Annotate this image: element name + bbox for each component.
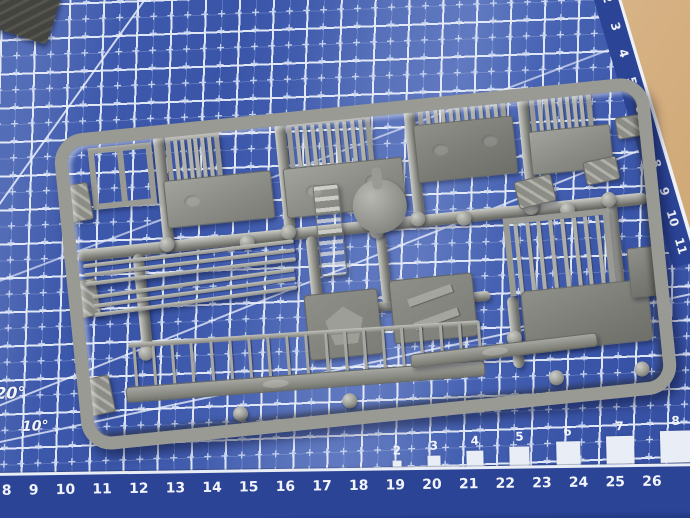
grid-plus-mark: + (522, 14, 532, 24)
grid-plus-mark: + (79, 65, 89, 75)
grid-plus-mark: + (231, 76, 241, 86)
grid-plus-mark: + (38, 288, 48, 298)
grid-plus-mark: + (113, 64, 123, 74)
grid-plus-mark: + (40, 220, 50, 230)
grid-plus-mark: + (420, 18, 430, 28)
ruler-number: 23 (532, 475, 552, 491)
grid-plus-mark: + (283, 40, 293, 50)
grid-plus-mark: + (39, 271, 49, 281)
grid-plus-mark: + (41, 203, 51, 213)
gauge-label: 4 (471, 434, 480, 448)
grid-plus-mark: + (248, 76, 258, 86)
grid-plus-mark: + (198, 44, 208, 54)
grid-plus-mark: + (232, 42, 242, 52)
grid-plus-mark: + (9, 136, 19, 146)
grid-plus-mark: + (34, 407, 44, 417)
grid-plus-mark: + (40, 237, 50, 247)
grid-plus-mark: + (182, 27, 192, 37)
grid-plus-mark: + (29, 50, 39, 60)
grid-plus-mark: + (333, 72, 343, 82)
grid-plus-mark: + (112, 81, 122, 91)
grid-plus-mark: + (147, 63, 157, 73)
grid-plus-mark: + (251, 0, 261, 1)
gauge-square (660, 430, 690, 463)
grid-plus-mark: + (488, 15, 498, 25)
grid-plus-mark: + (351, 38, 361, 48)
grid-plus-mark: + (334, 38, 344, 48)
grid-plus-mark: + (250, 8, 260, 18)
grid-plus-mark: + (180, 78, 190, 88)
grid-plus-mark: + (42, 169, 52, 179)
grid-plus-mark: + (237, 450, 247, 460)
grid-plus-mark: + (282, 74, 292, 84)
grid-plus-mark: + (183, 10, 193, 20)
ruler-number: 19 (385, 477, 405, 493)
grid-plus-mark: + (453, 51, 463, 61)
grid-plus-mark: + (300, 40, 310, 50)
grid-plus-mark: + (471, 0, 481, 9)
grid-plus-mark: + (317, 39, 327, 49)
grid-plus-mark: + (521, 48, 531, 58)
grid-plus-mark: + (351, 55, 361, 65)
grid-plus-mark: + (555, 47, 565, 57)
grid-plus-mark: + (36, 356, 46, 366)
grid-plus-mark: + (81, 0, 91, 7)
grid-plus-mark: + (95, 82, 105, 92)
grid-plus-mark: + (200, 9, 210, 19)
ruler-number: 16 (276, 479, 296, 495)
gauge-label: 8 (671, 414, 680, 428)
ruler-number: 18 (349, 478, 369, 494)
photo-sprue-on-cutting-mat: ++++++++++++++++++++++++++++++++++++++++… (0, 0, 690, 518)
grid-plus-mark: + (588, 63, 598, 73)
grid-plus-mark: + (20, 323, 30, 333)
gauge-square (606, 436, 635, 465)
grid-plus-mark: + (11, 68, 21, 78)
grid-plus-mark: + (505, 0, 515, 8)
grid-plus-mark: + (384, 70, 394, 80)
grid-plus-mark: + (0, 425, 10, 435)
grid-plus-mark: + (487, 32, 497, 42)
grid-plus-mark: + (683, 297, 690, 307)
grid-plus-mark: + (249, 59, 259, 69)
ruler-number: 20 (422, 477, 442, 493)
ruler-number: 4 (616, 48, 632, 60)
gauge-square (556, 441, 581, 466)
ruler-number: 17 (312, 478, 332, 494)
grid-plus-mark: + (162, 113, 172, 123)
angle-label-20: 20° (0, 383, 26, 403)
grid-plus-mark: + (45, 66, 55, 76)
grid-plus-mark: + (435, 68, 445, 78)
grid-plus-mark: + (130, 46, 140, 56)
grid-plus-mark: + (339, 429, 349, 439)
grid-plus-mark: + (147, 46, 157, 56)
grid-plus-mark: + (10, 102, 20, 112)
grid-plus-mark: + (573, 0, 583, 6)
grid-plus-mark: + (149, 11, 159, 21)
grid-plus-mark: + (98, 13, 108, 23)
ruler-number: 12 (129, 481, 149, 497)
grid-plus-mark: + (16, 459, 26, 469)
grid-plus-mark: + (271, 449, 281, 459)
grid-plus-mark: + (220, 451, 230, 461)
grid-plus-mark: + (488, 0, 498, 9)
grid-plus-mark: + (22, 254, 32, 264)
grid-plus-mark: + (233, 8, 243, 18)
ruler-number: 10 (663, 209, 681, 229)
grid-plus-mark: + (80, 31, 90, 41)
ruler-number: 3 (607, 20, 623, 32)
grid-plus-mark: + (249, 42, 259, 52)
grid-plus-mark: + (149, 0, 159, 5)
grid-plus-mark: + (539, 0, 549, 7)
grid-plus-mark: + (67, 440, 77, 450)
grid-plus-mark: + (94, 116, 104, 126)
grid-plus-mark: + (129, 80, 139, 90)
grid-plus-mark: + (164, 45, 174, 55)
grid-plus-mark: + (316, 90, 326, 100)
ruler-number: 26 (642, 474, 662, 490)
grid-plus-mark: + (418, 69, 428, 79)
grid-plus-mark: + (214, 94, 224, 104)
grid-plus-mark: + (317, 56, 327, 66)
grid-plus-mark: + (52, 389, 62, 399)
grid-plus-mark: + (254, 450, 264, 460)
ruler-number: 10 (56, 482, 76, 498)
grid-plus-mark: + (681, 331, 690, 341)
grid-plus-mark: + (166, 11, 176, 21)
grid-plus-mark: + (128, 114, 138, 124)
grid-plus-mark: + (284, 6, 294, 16)
gauge-label: 2 (392, 443, 401, 457)
grid-plus-mark: + (373, 428, 383, 438)
grid-plus-mark: + (41, 186, 51, 196)
grid-plus-mark: + (248, 93, 258, 103)
grid-plus-mark: + (216, 9, 226, 19)
grid-plus-mark: + (7, 204, 17, 214)
grid-plus-mark: + (183, 0, 193, 4)
grid-plus-mark: + (112, 98, 122, 108)
ruler-number: 25 (605, 474, 625, 490)
grid-plus-mark: + (61, 83, 71, 93)
gauge-column: 5 (509, 429, 530, 466)
grid-plus-mark: + (385, 53, 395, 63)
grid-plus-mark: + (42, 152, 52, 162)
grid-plus-mark: + (355, 446, 365, 456)
grid-plus-mark: + (288, 448, 298, 458)
grid-plus-mark: + (4, 306, 14, 316)
grid-plus-mark: + (418, 86, 428, 96)
gauge-label: 7 (615, 419, 624, 433)
grid-plus-mark: + (54, 321, 64, 331)
grid-plus-mark: + (217, 0, 227, 2)
gauge-column: 6 (555, 424, 580, 466)
grid-plus-mark: + (181, 44, 191, 54)
grid-plus-mark: + (318, 5, 328, 15)
grid-plus-mark: + (301, 6, 311, 16)
grid-plus-mark: + (271, 432, 281, 442)
grid-plus-mark: + (683, 280, 690, 290)
grid-plus-mark: + (50, 458, 60, 468)
gauge-column: 2 (392, 443, 402, 469)
ruler-number: 9 (29, 482, 39, 498)
gauge-square (510, 446, 530, 466)
grid-plus-mark: + (384, 87, 394, 97)
ruler-number: 13 (166, 480, 186, 496)
grid-plus-mark: + (11, 85, 21, 95)
grid-plus-mark: + (504, 32, 514, 42)
grid-plus-mark: + (402, 36, 412, 46)
grid-plus-mark: + (367, 71, 377, 81)
grid-plus-mark: + (556, 0, 566, 6)
grid-plus-mark: + (0, 408, 10, 418)
grid-plus-mark: + (77, 116, 87, 126)
grid-plus-mark: + (520, 65, 530, 75)
grid-plus-mark: + (8, 153, 18, 163)
grid-plus-mark: + (214, 77, 224, 87)
sprue-frame (52, 76, 679, 453)
grid-plus-mark: + (369, 3, 379, 13)
grid-plus-mark: + (36, 339, 46, 349)
grid-plus-mark: + (181, 61, 191, 71)
grid-plus-mark: + (3, 323, 13, 333)
grid-plus-mark: + (265, 75, 275, 85)
grid-plus-mark: + (64, 15, 74, 25)
grid-plus-mark: + (53, 355, 63, 365)
grid-plus-mark: + (250, 25, 260, 35)
grid-plus-mark: + (68, 406, 78, 416)
grid-plus-mark: + (556, 13, 566, 23)
grid-plus-mark: + (299, 74, 309, 84)
grid-plus-mark: + (284, 23, 294, 33)
grid-plus-mark: + (372, 445, 382, 455)
grid-plus-mark: + (148, 28, 158, 38)
grid-plus-mark: + (6, 221, 16, 231)
grid-plus-mark: + (169, 453, 179, 463)
model-kit-sprue (52, 76, 679, 453)
grid-plus-mark: + (146, 97, 156, 107)
ruler-number: 22 (495, 476, 515, 492)
ruler-number: 2 (599, 0, 615, 5)
grid-plus-mark: + (571, 63, 581, 73)
gauge-label: 5 (515, 429, 524, 443)
grid-plus-mark: + (454, 0, 464, 10)
gauge-label: 6 (563, 424, 572, 438)
grid-plus-mark: + (0, 51, 5, 61)
grid-plus-mark: + (60, 117, 70, 127)
grid-plus-mark: + (385, 36, 395, 46)
grid-plus-mark: + (55, 287, 65, 297)
grid-plus-mark: + (216, 26, 226, 36)
grid-plus-mark: + (321, 447, 331, 457)
grid-plus-mark: + (9, 119, 19, 129)
grid-plus-mark: + (38, 305, 48, 315)
grid-plus-mark: + (135, 454, 145, 464)
ruler-number: 8 (2, 483, 12, 499)
grid-plus-mark: + (0, 460, 9, 470)
angle-label-10: 10° (22, 418, 49, 435)
grid-plus-mark: + (33, 458, 43, 468)
ruler-number: 21 (459, 476, 479, 492)
grid-plus-mark: + (24, 186, 34, 196)
grid-plus-mark: + (555, 30, 565, 40)
grid-plus-mark: + (115, 13, 125, 23)
grid-plus-mark: + (12, 51, 22, 61)
ruler-number: 14 (202, 480, 222, 496)
grid-plus-mark: + (352, 4, 362, 14)
grid-plus-mark: + (386, 2, 396, 12)
grid-plus-mark: + (486, 67, 496, 77)
grid-plus-mark: + (81, 14, 91, 24)
grid-plus-mark: + (111, 115, 121, 125)
grid-plus-mark: + (35, 373, 45, 383)
bottom-ruler-band: 891011121314151617181920212223242526 (0, 463, 690, 518)
grid-plus-mark: + (401, 70, 411, 80)
grid-plus-mark: + (63, 49, 73, 59)
grid-plus-mark: + (682, 314, 690, 324)
grid-plus-mark: + (454, 17, 464, 27)
grid-plus-mark: + (680, 382, 690, 392)
grid-plus-mark: + (266, 41, 276, 51)
grid-plus-mark: + (0, 443, 10, 453)
grid-plus-mark: + (282, 91, 292, 101)
grid-plus-mark: + (267, 7, 277, 17)
grid-plus-mark: + (487, 50, 497, 60)
grid-plus-mark: + (197, 78, 207, 88)
grid-plus-mark: + (101, 456, 111, 466)
grid-plus-mark: + (522, 0, 532, 8)
grid-plus-mark: + (0, 120, 3, 130)
grid-plus-mark: + (6, 238, 16, 248)
ruler-number: 24 (569, 475, 589, 491)
grid-plus-mark: + (318, 22, 328, 32)
grid-plus-mark: + (352, 21, 362, 31)
grid-plus-mark: + (21, 289, 31, 299)
grid-plus-mark: + (403, 2, 413, 12)
gauge-column: 4 (466, 433, 484, 467)
grid-plus-mark: + (2, 340, 12, 350)
grid-plus-mark: + (503, 66, 513, 76)
grid-plus-mark: + (681, 348, 690, 358)
grid-plus-mark: + (5, 255, 15, 265)
grid-plus-mark: + (2, 357, 12, 367)
ruler-number: 15 (239, 479, 259, 495)
grid-plus-mark: + (338, 446, 348, 456)
grid-plus-mark: + (350, 72, 360, 82)
grid-plus-mark: + (538, 31, 548, 41)
grid-plus-mark: + (419, 52, 429, 62)
grid-plus-mark: + (572, 29, 582, 39)
grid-plus-mark: + (419, 35, 429, 45)
gauge-column: 7 (605, 419, 634, 465)
grid-plus-mark: + (283, 57, 293, 67)
grid-plus-mark: + (78, 99, 88, 109)
grid-plus-mark: + (305, 431, 315, 441)
grid-plus-mark: + (152, 454, 162, 464)
grid-plus-mark: + (368, 37, 378, 47)
grid-plus-mark: + (145, 114, 155, 124)
grid-plus-mark: + (115, 0, 125, 6)
grid-plus-mark: + (23, 220, 33, 230)
grid-plus-mark: + (163, 79, 173, 89)
grid-plus-mark: + (589, 29, 599, 39)
grid-plus-mark: + (46, 49, 56, 59)
grid-plus-mark: + (80, 48, 90, 58)
bottom-ruler-numbers: 891011121314151617181920212223242526 (2, 474, 662, 499)
grid-plus-mark: + (180, 95, 190, 105)
grid-plus-mark: + (37, 322, 47, 332)
grid-plus-mark: + (316, 73, 326, 83)
grid-plus-mark: + (437, 0, 447, 10)
grid-plus-mark: + (118, 455, 128, 465)
grid-plus-mark: + (203, 452, 213, 462)
gauge-column: 8 (659, 413, 690, 463)
ruler-number: 11 (92, 481, 112, 497)
grid-plus-mark: + (19, 357, 29, 367)
grid-plus-mark: + (305, 448, 315, 458)
grid-plus-mark: + (186, 452, 196, 462)
grid-plus-mark: + (0, 85, 4, 95)
grid-plus-mark: + (453, 34, 463, 44)
grid-plus-mark: + (386, 19, 396, 29)
ruler-number: 11 (671, 236, 689, 256)
grid-plus-mark: + (680, 365, 690, 375)
grid-plus-mark: + (420, 1, 430, 11)
grid-plus-mark: + (84, 456, 94, 466)
grid-plus-mark: + (436, 34, 446, 44)
grid-plus-mark: + (26, 118, 36, 128)
gauge-label: 3 (429, 439, 438, 453)
grid-plus-mark: + (452, 68, 462, 78)
grid-plus-mark: + (67, 457, 77, 467)
grid-plus-mark: + (113, 47, 123, 57)
gauge-column: 3 (427, 438, 441, 468)
grid-plus-mark: + (27, 84, 37, 94)
grid-plus-mark: + (335, 4, 345, 14)
grid-plus-mark: + (44, 84, 54, 94)
grid-plus-mark: + (146, 80, 156, 90)
grid-plus-mark: + (521, 31, 531, 41)
grid-plus-mark: + (33, 441, 43, 451)
grid-plus-mark: + (4, 289, 14, 299)
grid-plus-mark: + (469, 67, 479, 77)
grid-plus-mark: + (215, 60, 225, 70)
grid-plus-mark: + (44, 101, 54, 111)
grid-plus-mark: + (215, 43, 225, 53)
grid-plus-mark: + (350, 89, 360, 99)
grid-plus-mark: + (470, 33, 480, 43)
